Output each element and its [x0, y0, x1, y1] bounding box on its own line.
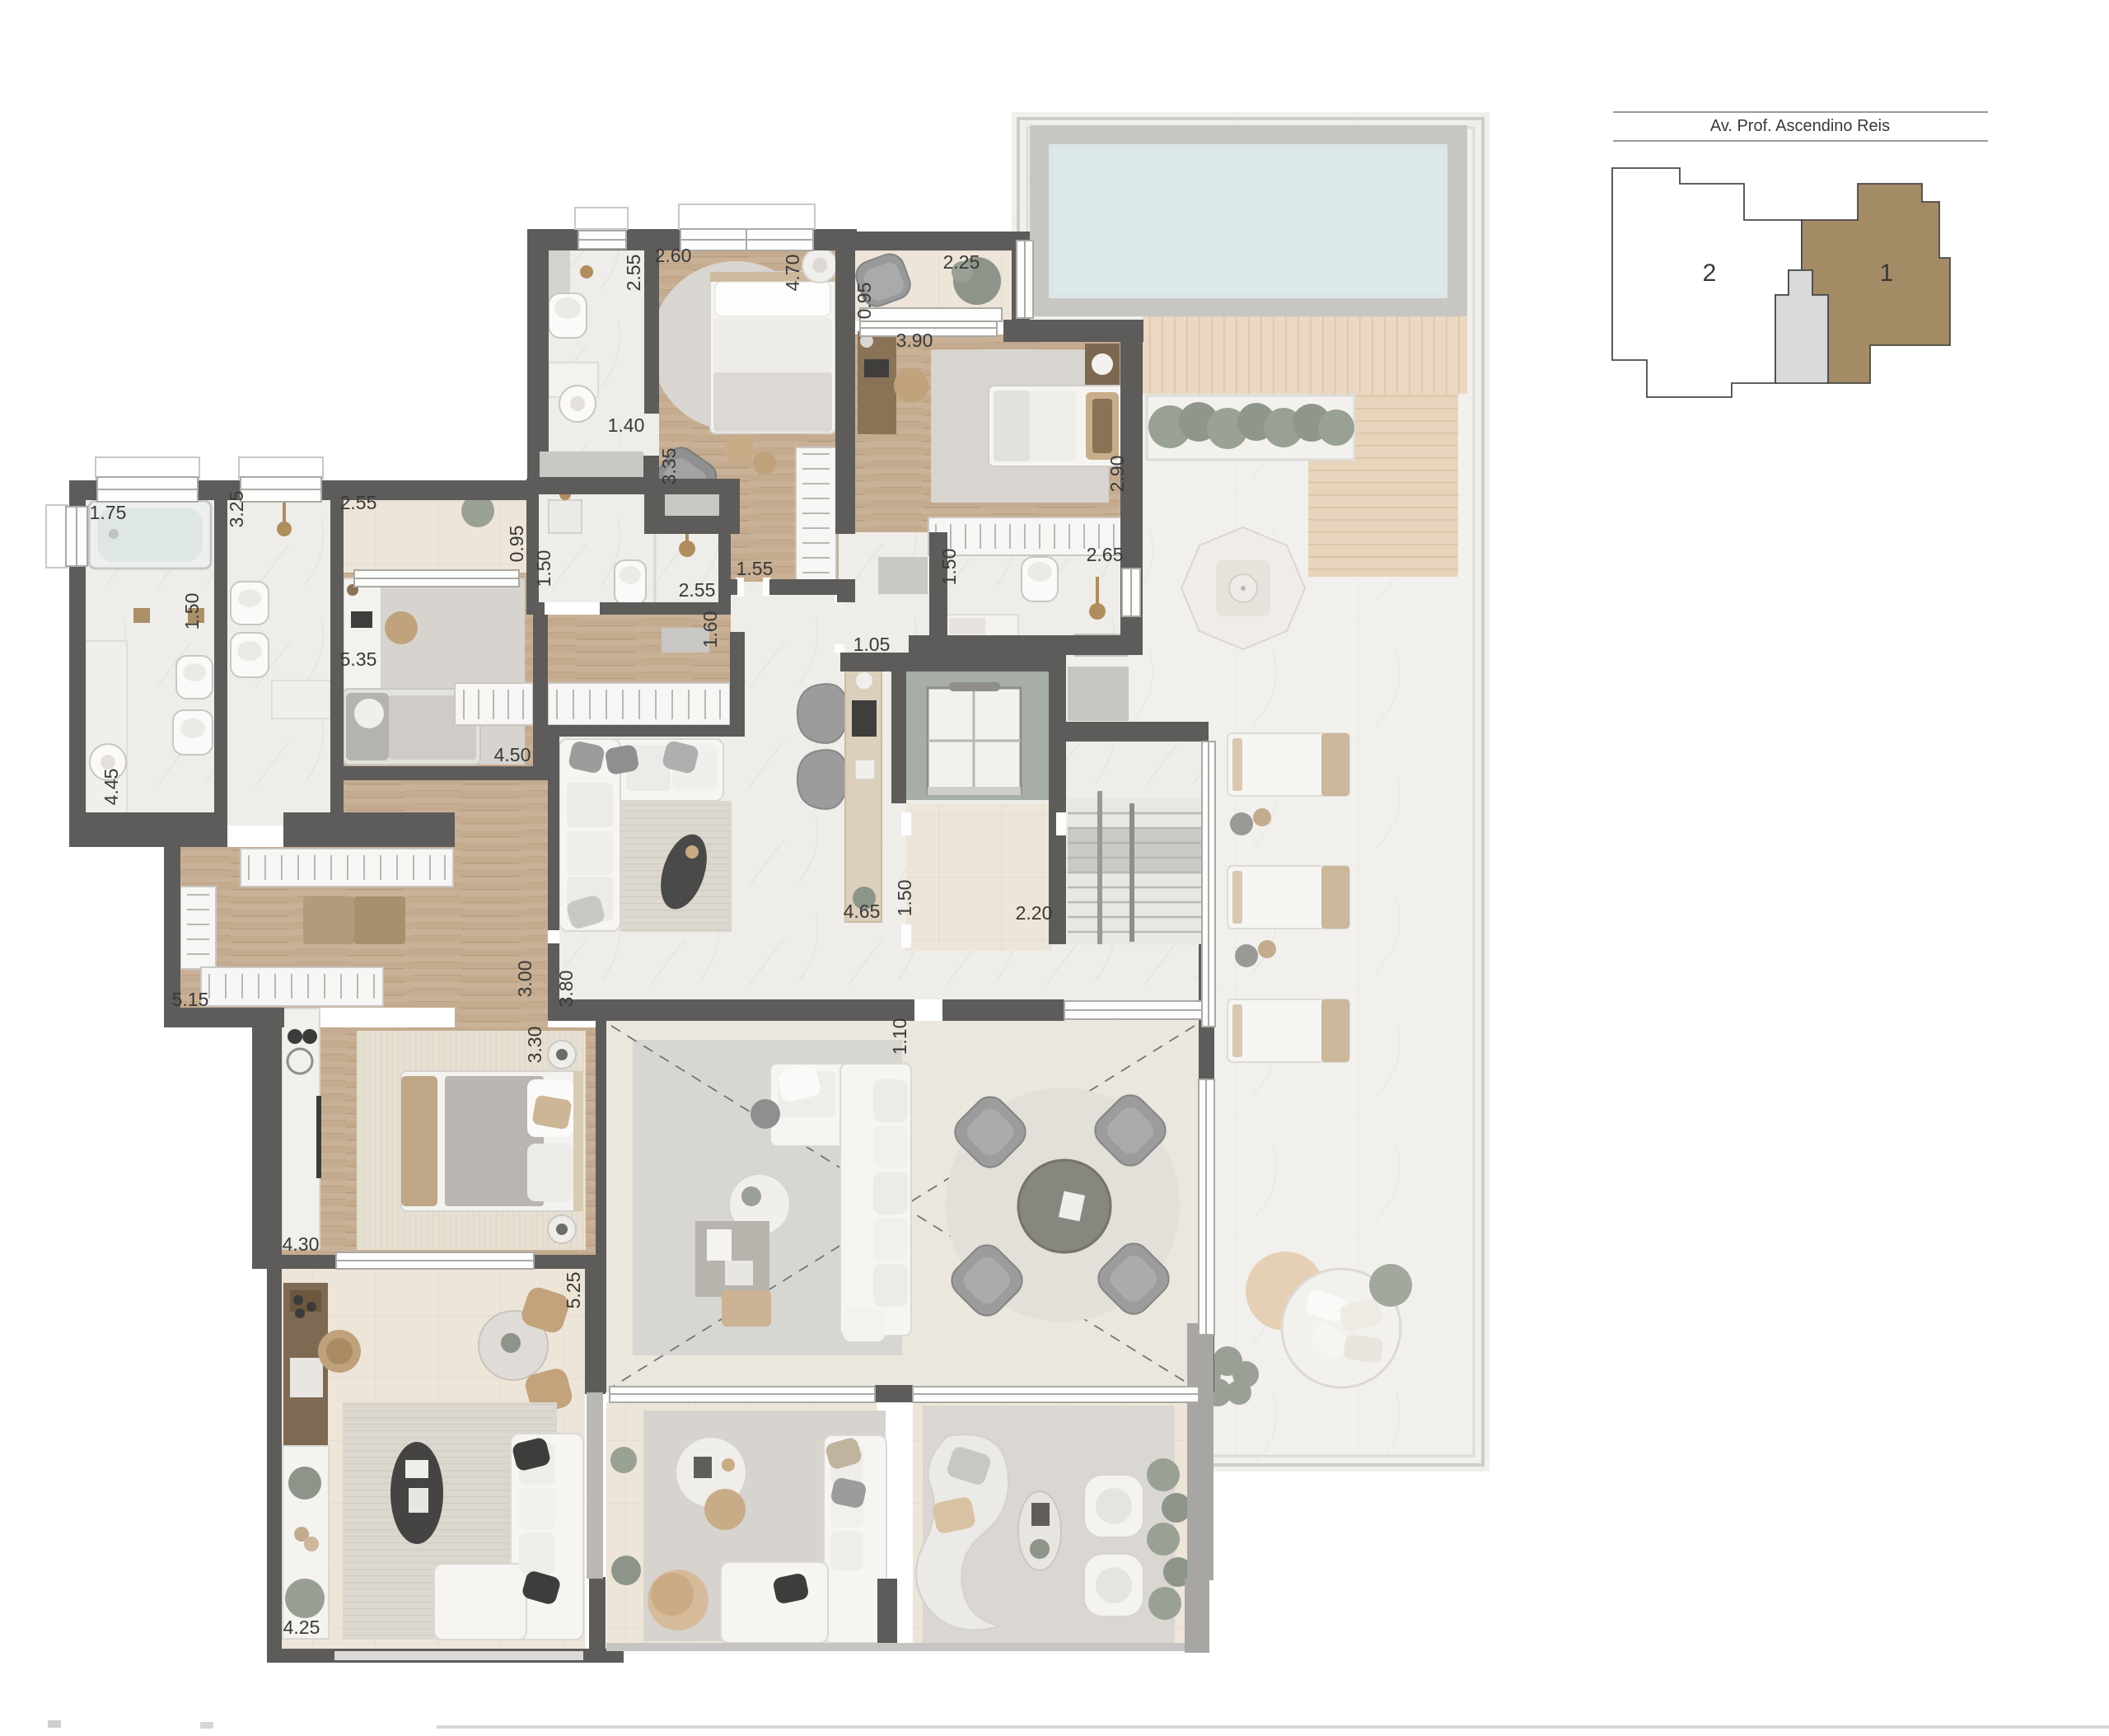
svg-text:1.50: 1.50	[181, 593, 203, 630]
svg-text:2.90: 2.90	[1106, 456, 1128, 493]
svg-text:4.65: 4.65	[844, 901, 881, 922]
svg-text:2.25: 2.25	[943, 251, 980, 273]
svg-text:5.35: 5.35	[340, 648, 377, 670]
svg-text:Av. Prof. Ascendino Reis: Av. Prof. Ascendino Reis	[1710, 117, 1890, 135]
svg-text:1: 1	[1880, 260, 1894, 287]
svg-text:3.80: 3.80	[555, 971, 577, 1008]
svg-text:4.30: 4.30	[283, 1233, 320, 1255]
svg-text:2.60: 2.60	[655, 245, 692, 266]
svg-text:1.40: 1.40	[608, 414, 645, 436]
svg-text:3.90: 3.90	[896, 330, 933, 351]
svg-text:2: 2	[1703, 260, 1717, 287]
svg-text:3.35: 3.35	[658, 448, 680, 485]
svg-text:1.50: 1.50	[938, 549, 960, 586]
svg-text:2.55: 2.55	[679, 579, 716, 601]
svg-text:1.50: 1.50	[533, 550, 554, 587]
svg-text:1.10: 1.10	[889, 1018, 910, 1055]
svg-text:1.60: 1.60	[699, 611, 721, 648]
svg-text:2.55: 2.55	[623, 255, 644, 292]
svg-text:5.15: 5.15	[172, 989, 209, 1010]
svg-text:4.25: 4.25	[283, 1617, 320, 1638]
svg-text:1.05: 1.05	[853, 634, 891, 655]
svg-text:4.45: 4.45	[101, 769, 122, 806]
svg-text:1.50: 1.50	[894, 880, 915, 917]
svg-text:0.95: 0.95	[853, 283, 875, 320]
svg-text:2.20: 2.20	[1016, 902, 1053, 924]
svg-text:3.00: 3.00	[514, 961, 535, 998]
svg-text:4.70: 4.70	[782, 255, 803, 292]
svg-text:1.55: 1.55	[737, 558, 774, 579]
svg-text:3.25: 3.25	[226, 491, 247, 528]
svg-text:1.75: 1.75	[90, 502, 127, 523]
svg-text:2.65: 2.65	[1087, 544, 1124, 565]
svg-text:3.30: 3.30	[524, 1027, 545, 1064]
svg-text:2.55: 2.55	[340, 492, 377, 513]
svg-text:4.50: 4.50	[494, 744, 531, 765]
svg-text:5.25: 5.25	[563, 1272, 584, 1309]
svg-text:0.95: 0.95	[506, 526, 527, 563]
